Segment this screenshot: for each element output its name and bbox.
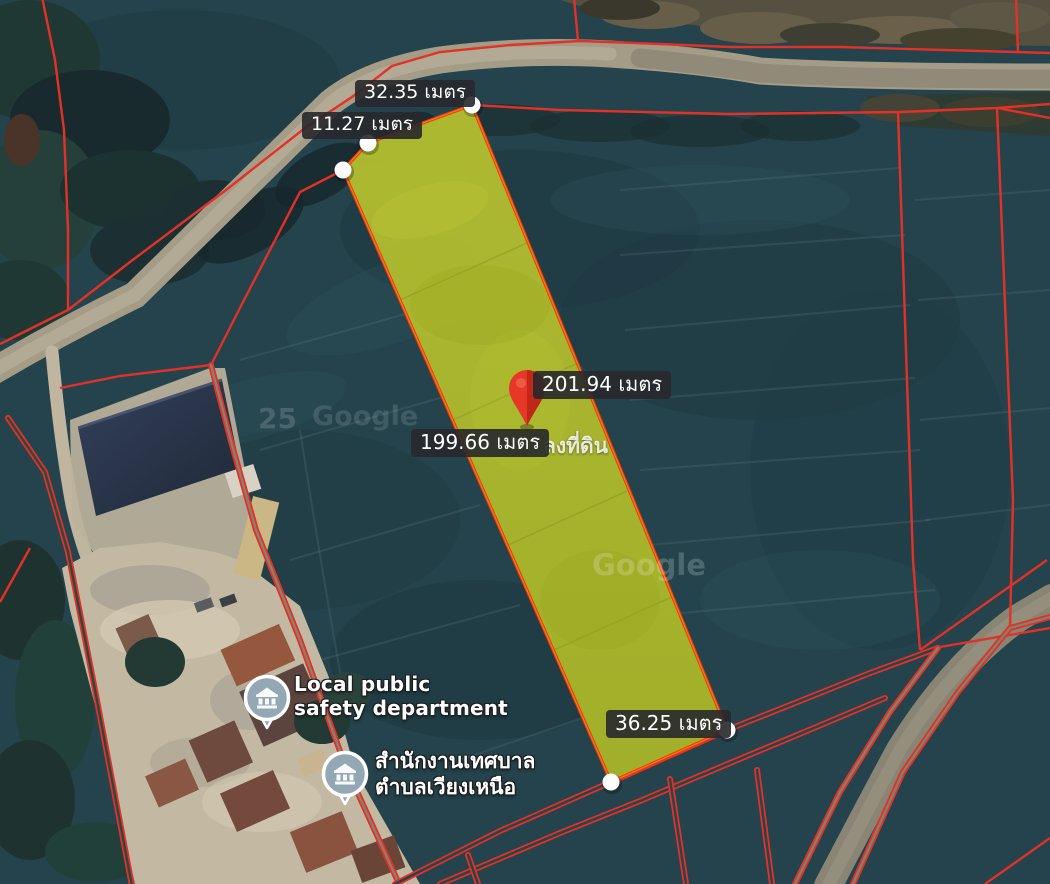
poi-label-municipality-office[interactable]: สำนักงานเทศบาล ตำบลเวียงเหนือ <box>375 748 535 800</box>
measurement-label-top-edge: 32.35 เมตร <box>355 80 475 107</box>
measurement-label-top-left-edge: 11.27 เมตร <box>302 112 422 139</box>
satellite-map[interactable]: 25 Google Google ลงที่ดิน 32.35 เมตร 11.… <box>0 0 1050 884</box>
poi-label-local-public-safety[interactable]: Local public safety department <box>294 672 508 720</box>
poi-label-line2: ตำบลเวียงเหนือ <box>375 774 535 800</box>
poi-label-line1: สำนักงานเทศบาล <box>375 748 535 774</box>
measurement-label-left-edge: 199.66 เมตร <box>411 429 549 457</box>
measurement-label-right-edge: 201.94 เมตร <box>533 371 671 399</box>
poi-label-line2: safety department <box>294 696 508 720</box>
measurement-label-bottom-edge: 36.25 เมตร <box>606 710 731 738</box>
poi-label-line1: Local public <box>294 672 508 696</box>
